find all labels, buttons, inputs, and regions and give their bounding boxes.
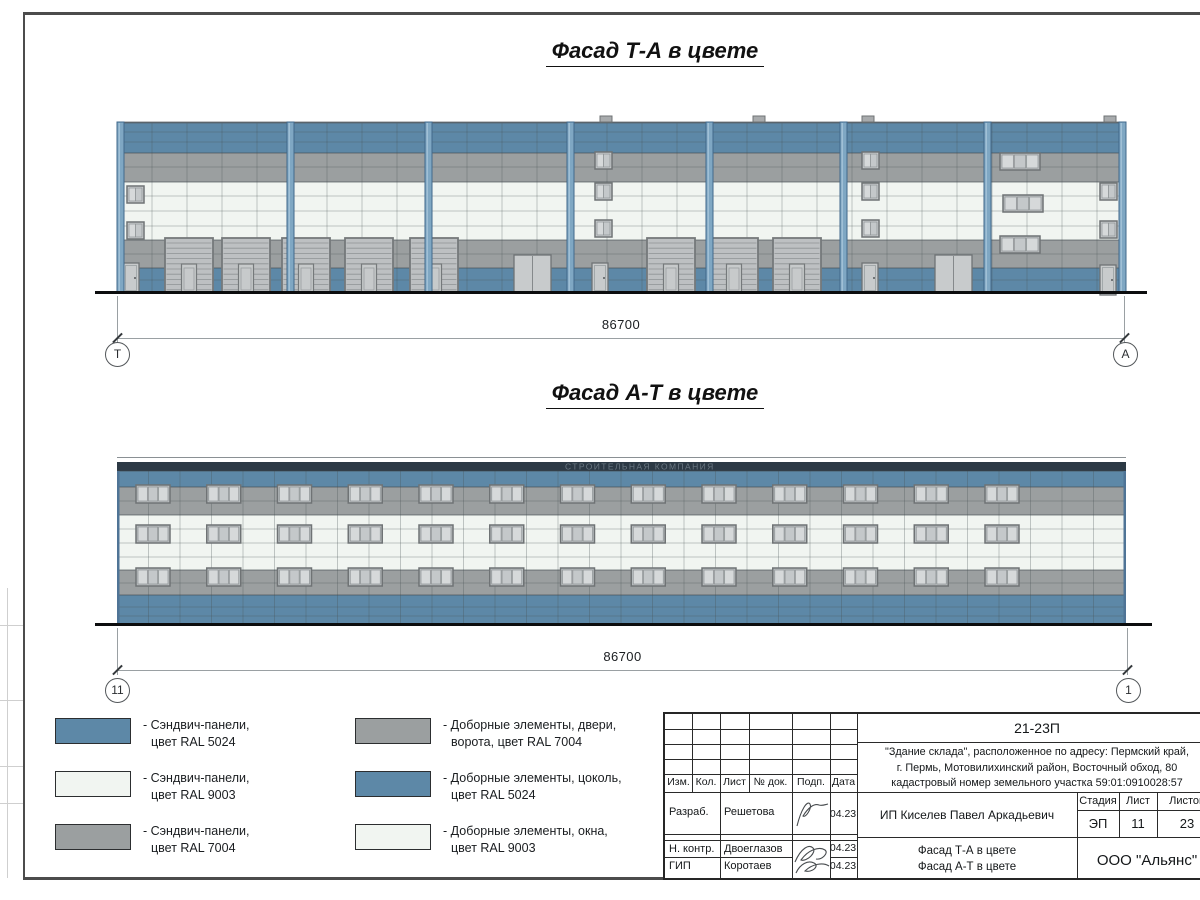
legend-label: - Доборные элементы, цоколь,цвет RAL 502… [443,770,622,803]
stamp-col-list: Лист [720,776,749,788]
stamp-col-podp: Подп. [792,776,830,788]
axis-marker-1: 1 [1116,678,1141,703]
stamp-name: Коротаев [724,860,772,872]
legend-swatch [355,771,431,797]
watermark: СТРОИТЕЛЬНАЯ КОМПАНИЯ [565,462,715,472]
facade-ta-title: Фасад Т-А в цвете [155,38,1155,64]
stamp-stage-label: Стадия [1077,795,1119,807]
pilaster [425,122,432,293]
stamp-col-ndok: № док. [749,776,792,788]
legend-swatch [355,824,431,850]
roof-vent [600,116,612,122]
stamp-sheets-value: 23 [1157,816,1200,831]
stamp-drawing-title: Фасад Т-А в цвете [857,845,1077,857]
stamp-sheet-label: Лист [1119,795,1157,807]
stamp-date: 04.23 [829,860,857,872]
roof-vent [753,116,765,122]
signature [792,840,832,880]
facade-ta-drawing [117,122,1126,293]
panel-band [117,122,1126,153]
dimension-value: 86700 [117,649,1128,664]
stamp-organization: ООО "Альянс" [1077,852,1200,869]
dimension-at: 86700 [117,628,1128,678]
legend-label: - Доборные элементы, двери,ворота, цвет … [443,717,616,750]
axis-marker-11: 11 [105,678,130,703]
stamp-role: ГИП [669,860,691,872]
side-stamp-line [0,700,23,701]
side-stamp-line [0,803,23,804]
side-stamp-line [7,588,8,878]
dimension-line [117,670,1128,671]
stamp-name: Решетова [724,806,774,818]
stamp-stage-value: ЭП [1077,816,1119,831]
legend-swatch [55,771,131,797]
title-block: Изм. Кол. Лист № док. Подп. Дата Разраб.… [663,712,1200,880]
axis-marker-a: А [1113,342,1138,367]
legend-label: - Сэндвич-панели,цвет RAL 7004 [143,823,249,856]
facade-at-drawing: СТРОИТЕЛЬНАЯ КОМПАНИЯ [117,455,1126,625]
frame-left [23,12,25,880]
pilaster [1119,122,1126,293]
stamp-client: ИП Киселев Павел Аркадьевич [857,808,1077,822]
stamp-col-data: Дата [830,776,857,788]
pilaster [287,122,294,293]
dimension-line [117,338,1125,339]
stamp-date: 04.23 [829,842,857,854]
facade-at-title: Фасад А-Т в цвете [155,380,1155,406]
stamp-role: Разраб. [669,806,709,818]
stamp-sheet-value: 11 [1119,816,1157,831]
legend-swatch [55,718,131,744]
pilaster [840,122,847,293]
roof-vent [862,116,874,122]
legend-swatch [355,718,431,744]
stamp-object-address: "Здание склада", расположенное по адресу… [861,745,1200,792]
roof-vent [1104,116,1116,122]
axis-marker-t: Т [105,342,130,367]
pilaster [567,122,574,293]
stamp-sheets-label: Листов [1157,795,1200,807]
stamp-name: Двоеглазов [724,843,782,855]
dimension-ta: 86700 [117,296,1125,346]
stamp-doc-number: 21-23П [857,720,1200,736]
dimension-value: 86700 [117,317,1125,332]
stamp-drawing-title: Фасад А-Т в цвете [857,861,1077,873]
stamp-role: Н. контр. [669,843,714,855]
side-stamp-line [0,625,23,626]
stamp-col-izm: Изм. [665,776,692,788]
signature [794,796,830,834]
ground-line-ta [95,291,1147,294]
legend-label: - Сэндвич-панели,цвет RAL 9003 [143,770,249,803]
legend-swatch [55,824,131,850]
side-stamp-line [0,766,23,767]
pilaster [984,122,991,293]
frame-top [23,12,1200,15]
legend-label: - Сэндвич-панели,цвет RAL 5024 [143,717,249,750]
stamp-col-kol: Кол. [692,776,720,788]
legend-label: - Доборные элементы, окна,цвет RAL 9003 [443,823,608,856]
pilaster [117,122,124,293]
drawing-sheet: { "palette": { "blue": "#5d88a7", "white… [0,0,1200,900]
stamp-date: 04.23 [829,808,857,820]
pilaster [706,122,713,293]
ground-line-at [95,623,1152,626]
